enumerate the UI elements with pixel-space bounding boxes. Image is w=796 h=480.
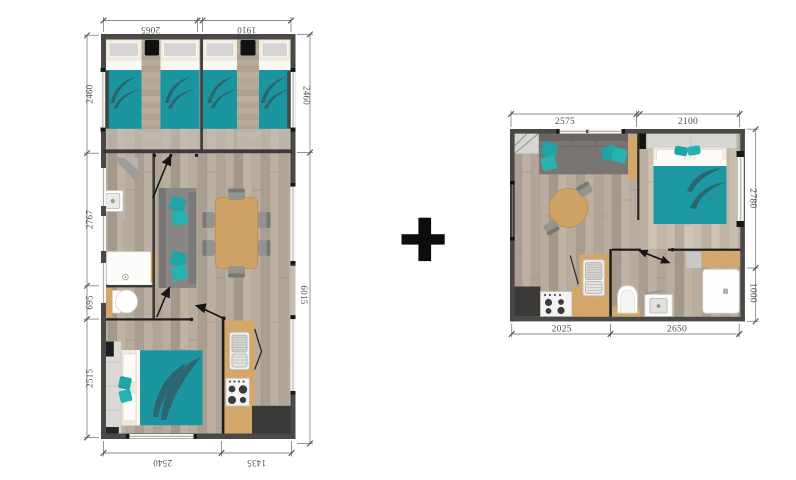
svg-text:1435: 1435 xyxy=(247,458,266,468)
svg-text:2460: 2460 xyxy=(85,84,95,103)
svg-text:1000: 1000 xyxy=(747,283,757,303)
svg-text:2100: 2100 xyxy=(678,117,698,127)
svg-text:2650: 2650 xyxy=(667,325,687,335)
svg-text:6015: 6015 xyxy=(299,285,309,304)
svg-text:695: 695 xyxy=(85,295,95,310)
svg-text:2540: 2540 xyxy=(153,458,172,468)
svg-text:2460: 2460 xyxy=(302,86,312,105)
svg-text:2767: 2767 xyxy=(85,210,95,229)
svg-text:2575: 2575 xyxy=(555,117,575,127)
svg-text:2780: 2780 xyxy=(747,188,757,208)
svg-text:2025: 2025 xyxy=(552,325,572,335)
svg-text:2065: 2065 xyxy=(141,25,160,35)
svg-text:1910: 1910 xyxy=(237,25,256,35)
svg-text:2515: 2515 xyxy=(85,369,95,388)
